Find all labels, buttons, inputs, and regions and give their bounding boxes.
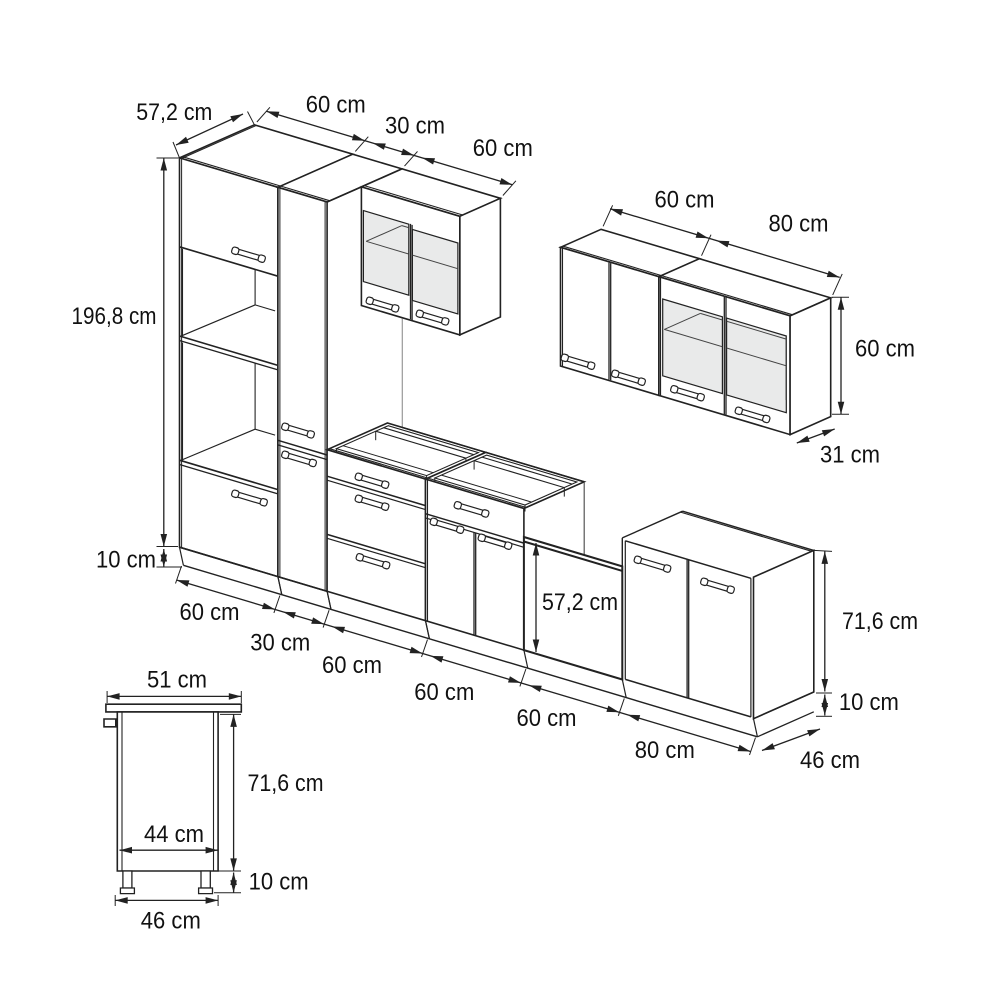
svg-text:60 cm: 60 cm	[414, 679, 474, 706]
svg-text:80 cm: 80 cm	[769, 211, 829, 238]
svg-text:60 cm: 60 cm	[306, 92, 366, 119]
svg-text:10 cm: 10 cm	[839, 689, 899, 716]
svg-text:71,6 cm: 71,6 cm	[842, 608, 918, 635]
svg-text:44 cm: 44 cm	[144, 821, 204, 848]
svg-text:60 cm: 60 cm	[473, 135, 533, 162]
svg-text:60 cm: 60 cm	[517, 705, 577, 732]
svg-text:80 cm: 80 cm	[635, 737, 695, 764]
svg-text:196,8 cm: 196,8 cm	[72, 303, 157, 330]
svg-text:71,6 cm: 71,6 cm	[248, 770, 324, 797]
svg-text:30 cm: 30 cm	[250, 630, 310, 657]
svg-text:51 cm: 51 cm	[147, 667, 207, 694]
svg-text:31 cm: 31 cm	[820, 442, 880, 469]
svg-text:60 cm: 60 cm	[322, 652, 382, 679]
svg-text:46 cm: 46 cm	[800, 747, 860, 774]
svg-text:57,2 cm: 57,2 cm	[542, 589, 618, 616]
svg-text:60 cm: 60 cm	[855, 335, 915, 362]
svg-text:60 cm: 60 cm	[180, 599, 240, 626]
svg-text:10 cm: 10 cm	[249, 869, 309, 896]
svg-text:57,2 cm: 57,2 cm	[136, 99, 212, 126]
svg-text:46 cm: 46 cm	[141, 907, 201, 934]
svg-text:10 cm: 10 cm	[96, 547, 156, 574]
svg-text:60 cm: 60 cm	[655, 187, 715, 214]
svg-text:30 cm: 30 cm	[385, 113, 445, 140]
